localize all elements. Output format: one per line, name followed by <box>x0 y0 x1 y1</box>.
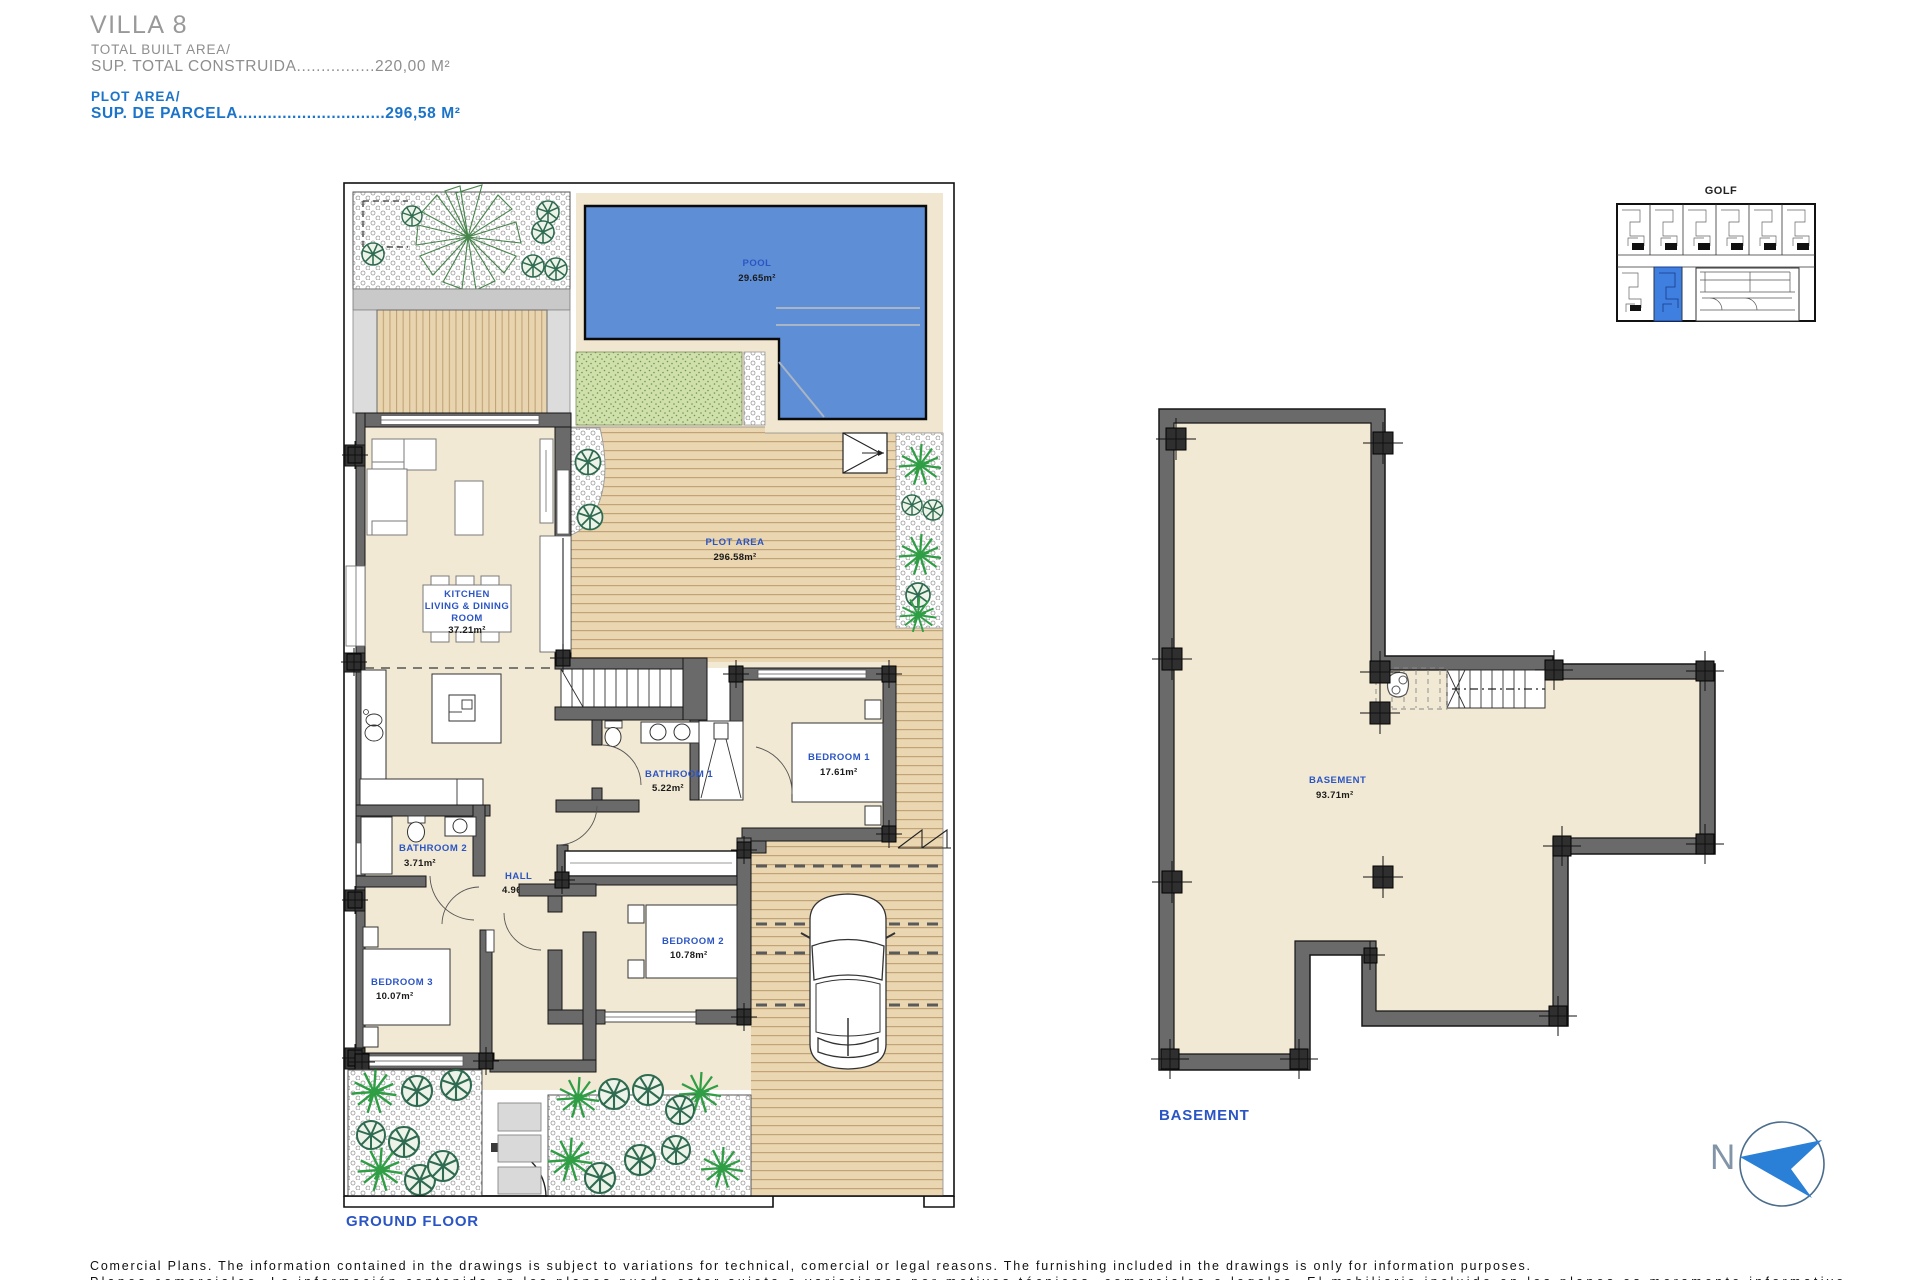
svg-text:GROUND FLOOR: GROUND FLOOR <box>346 1213 479 1230</box>
svg-text:BEDROOM 3: BEDROOM 3 <box>371 977 433 988</box>
svg-text:37.21m²: 37.21m² <box>448 625 485 636</box>
svg-text:BATHROOM 2: BATHROOM 2 <box>399 843 467 854</box>
svg-text:BASEMENT: BASEMENT <box>1309 775 1366 786</box>
svg-text:ROOM: ROOM <box>451 613 483 624</box>
svg-text:29.65m²: 29.65m² <box>738 273 775 284</box>
svg-text:HALL: HALL <box>505 871 532 882</box>
svg-text:POOL: POOL <box>743 258 772 269</box>
svg-text:PLOT AREA/: PLOT AREA/ <box>91 89 180 104</box>
svg-text:296.58m²: 296.58m² <box>713 552 756 563</box>
svg-text:GOLF: GOLF <box>1705 185 1738 197</box>
svg-text:Planos comerciales. La informa: Planos comerciales. La información conte… <box>90 1275 1850 1280</box>
svg-text:10.07m²: 10.07m² <box>376 991 413 1002</box>
svg-text:PLOT AREA: PLOT AREA <box>705 537 764 548</box>
svg-text:BEDROOM 2: BEDROOM 2 <box>662 936 724 947</box>
svg-text:N: N <box>1710 1138 1735 1177</box>
svg-text:5.22m²: 5.22m² <box>652 783 684 794</box>
svg-text:BATHROOM 1: BATHROOM 1 <box>645 769 713 780</box>
svg-text:SUP. TOTAL CONSTRUIDA.........: SUP. TOTAL CONSTRUIDA................220… <box>91 58 450 75</box>
svg-text:17.61m²: 17.61m² <box>820 767 857 778</box>
svg-text:BEDROOM 1: BEDROOM 1 <box>808 752 870 763</box>
svg-text:BASEMENT: BASEMENT <box>1159 1107 1250 1124</box>
svg-text:3.71m²: 3.71m² <box>404 858 436 869</box>
svg-text:TOTAL BUILT AREA/: TOTAL BUILT AREA/ <box>91 42 231 57</box>
svg-text:SUP. DE PARCELA...............: SUP. DE PARCELA.........................… <box>91 105 460 122</box>
svg-text:LIVING & DINING: LIVING & DINING <box>425 601 510 612</box>
svg-text:KITCHEN: KITCHEN <box>444 589 490 600</box>
svg-text:10.78m²: 10.78m² <box>670 950 707 961</box>
svg-text:Comercial Plans. The informati: Comercial Plans. The information contain… <box>90 1259 1530 1273</box>
svg-text:93.71m²: 93.71m² <box>1316 790 1353 801</box>
svg-text:VILLA 8: VILLA 8 <box>90 11 188 39</box>
